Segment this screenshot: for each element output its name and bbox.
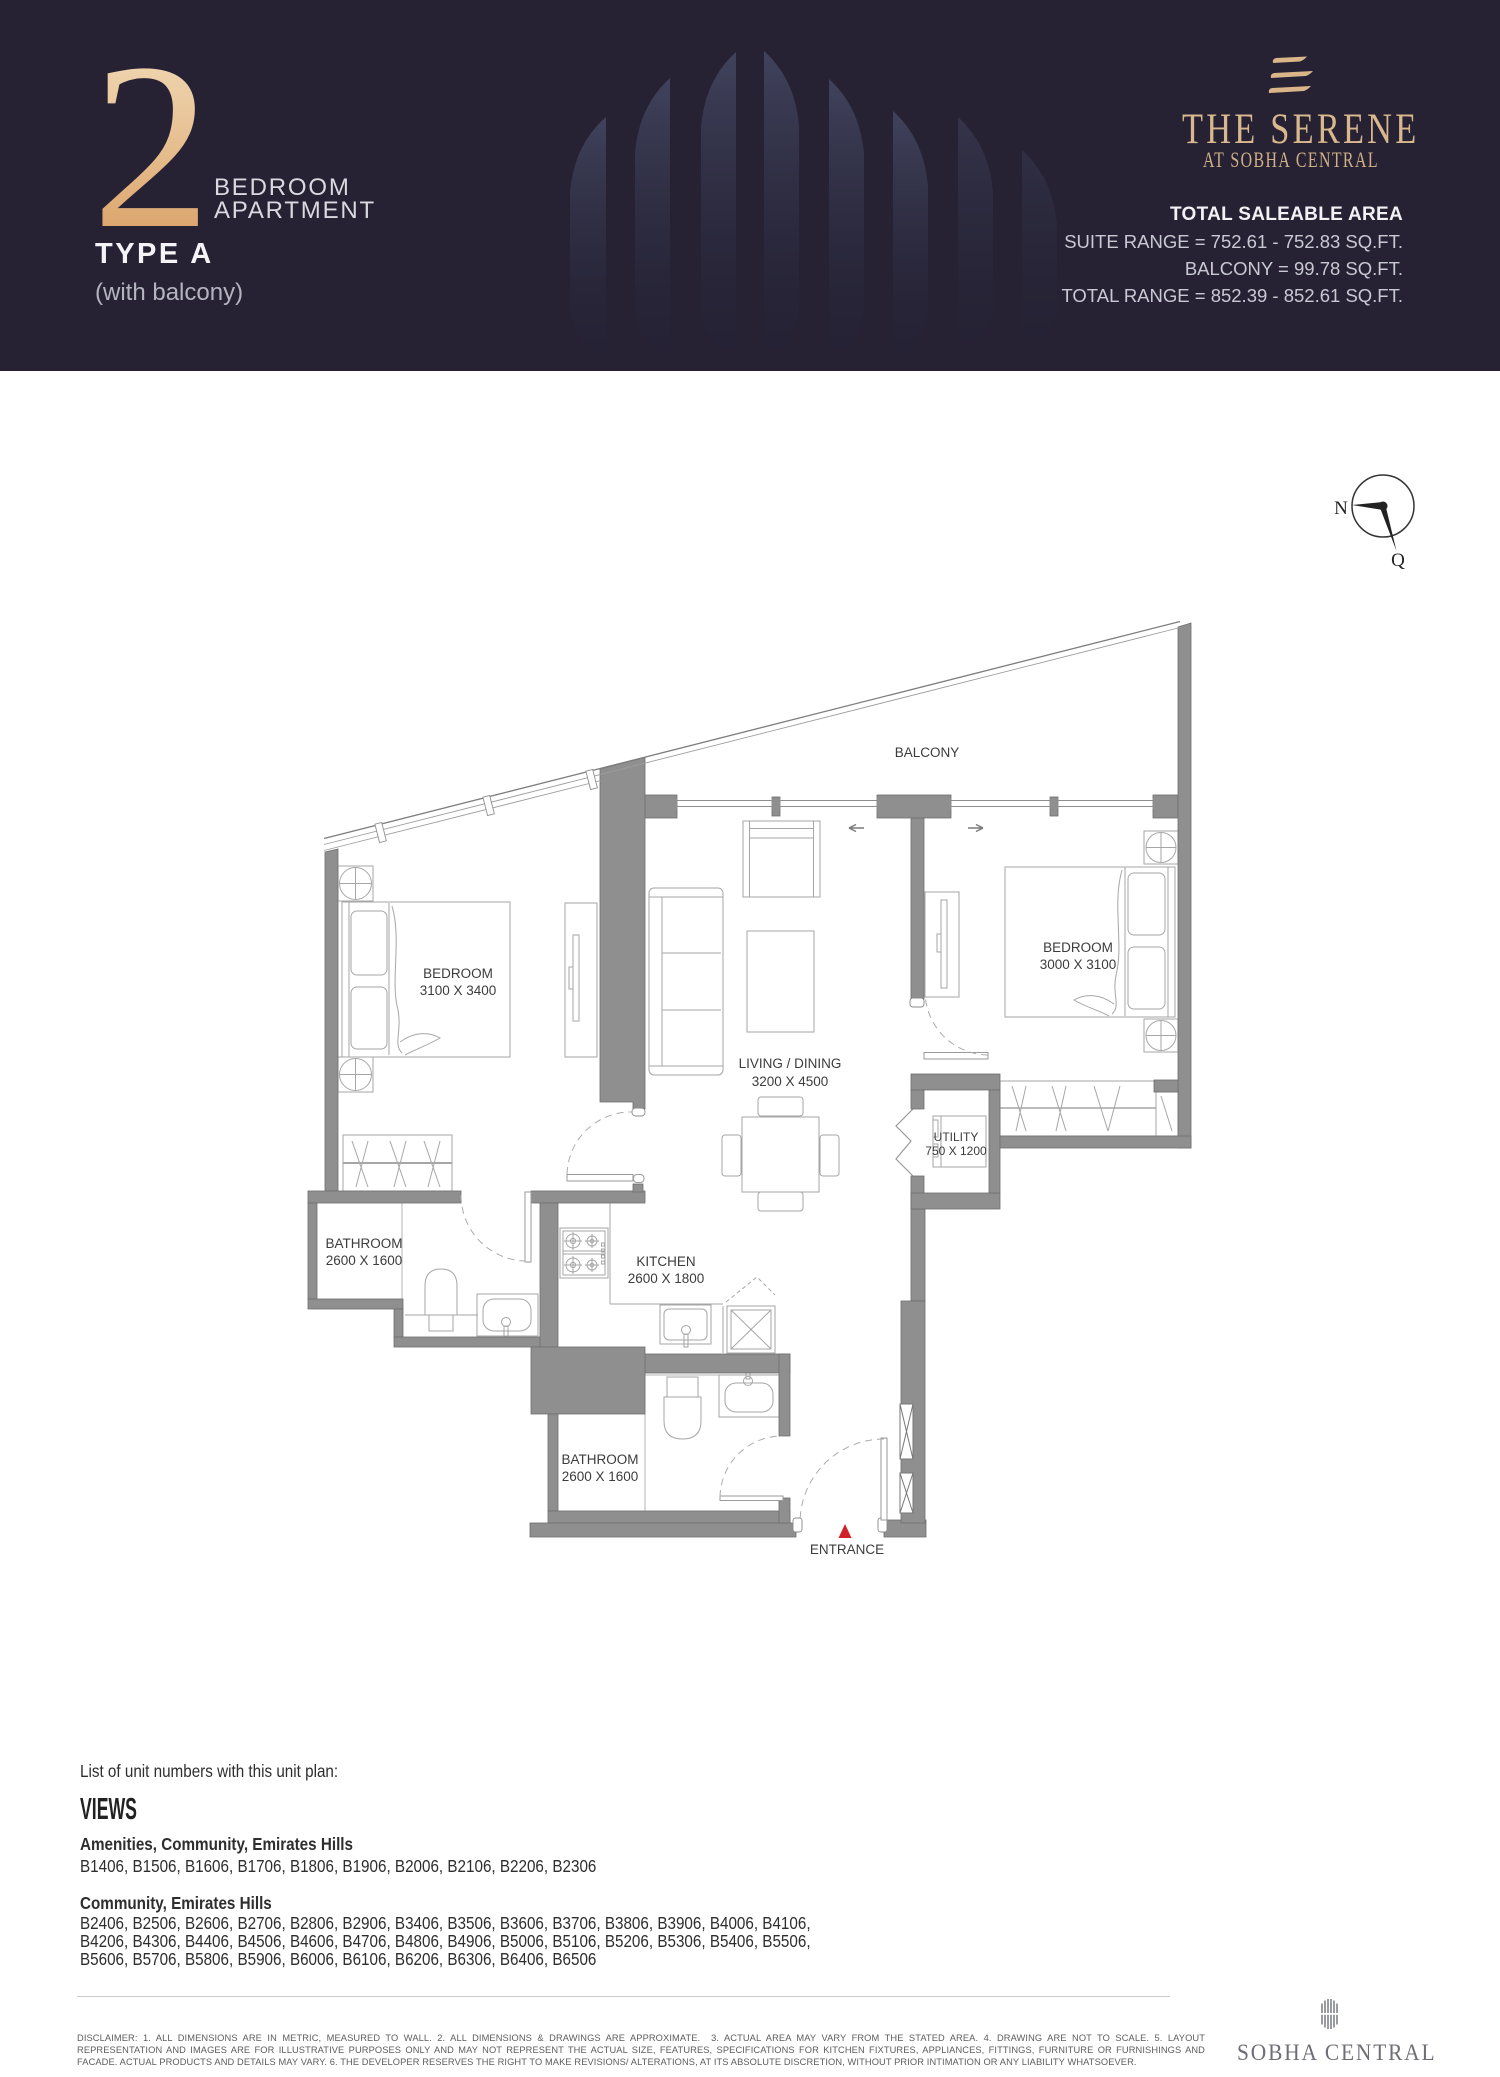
svg-text:2600 X 1600: 2600 X 1600 [562, 1469, 639, 1484]
svg-text:BATHROOM: BATHROOM [562, 1452, 639, 1467]
svg-text:LIVING / DINING: LIVING / DINING [739, 1056, 842, 1071]
svg-text:3200 X 4500: 3200 X 4500 [752, 1074, 829, 1089]
svg-text:BEDROOM: BEDROOM [423, 966, 493, 981]
svg-text:2600 X 1800: 2600 X 1800 [628, 1271, 705, 1286]
svg-text:3000 X 3100: 3000 X 3100 [1040, 957, 1117, 972]
svg-text:Q: Q [1391, 550, 1405, 571]
svg-text:KITCHEN: KITCHEN [636, 1254, 695, 1269]
svg-text:N: N [1334, 498, 1348, 519]
svg-text:750 X 1200: 750 X 1200 [925, 1144, 987, 1158]
svg-text:UTILITY: UTILITY [934, 1130, 979, 1144]
svg-text:BALCONY: BALCONY [895, 745, 960, 760]
svg-text:BATHROOM: BATHROOM [326, 1236, 403, 1251]
svg-text:2600 X 1600: 2600 X 1600 [326, 1253, 403, 1268]
svg-text:3100 X 3400: 3100 X 3400 [420, 983, 497, 998]
svg-text:ENTRANCE: ENTRANCE [810, 1542, 884, 1557]
svg-text:BEDROOM: BEDROOM [1043, 940, 1113, 955]
